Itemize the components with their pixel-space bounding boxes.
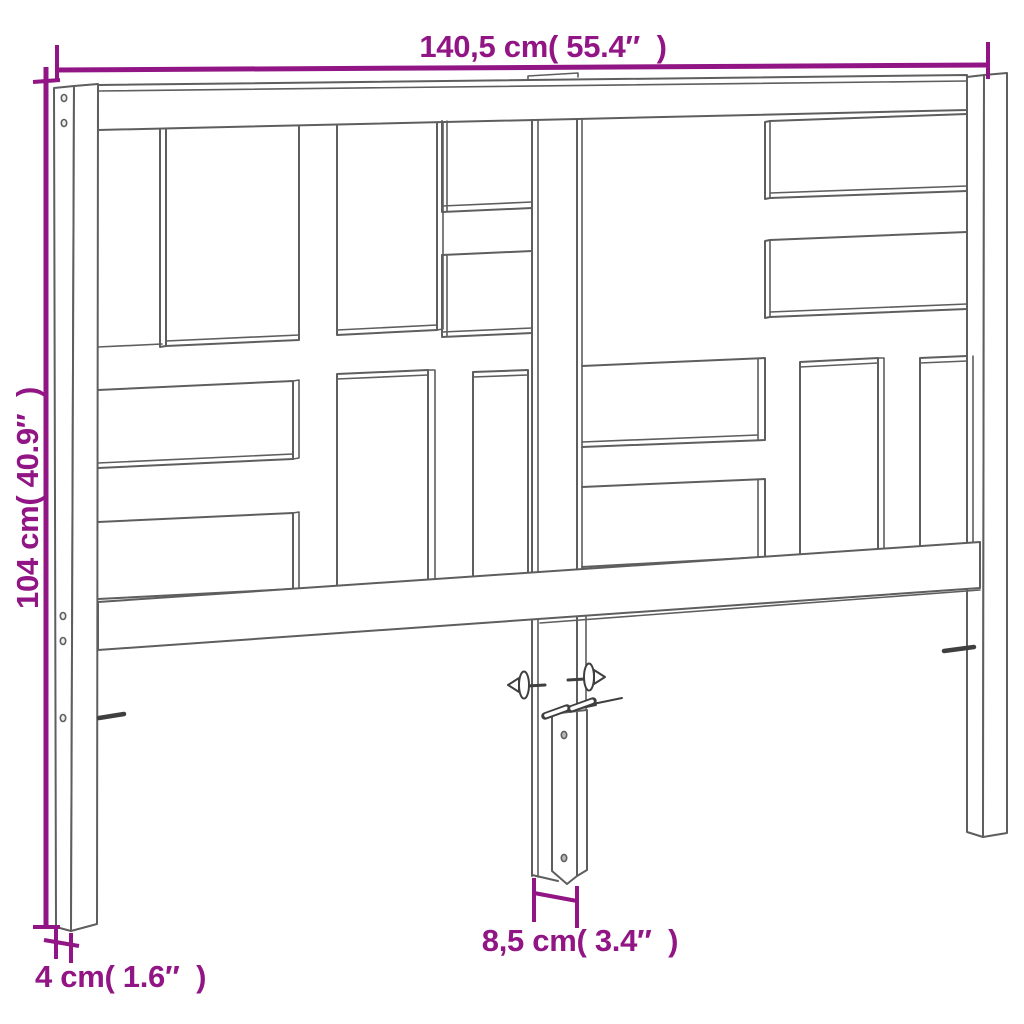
bracket-hole [561,854,566,861]
headboard-dimension-diagram: 140,5 cm( 55.4″ ) 104 cm( 40.9″ ) 4 cm( … [0,0,1024,1024]
screw-hole [61,120,66,127]
lattice-left-half [98,121,532,599]
screw-hole [61,95,66,102]
bracket-width-dimension: 8,5 cm( 3.4″ ) [482,878,678,958]
left-post [54,84,124,931]
width-dimension-label: 140,5 cm( 55.4″ ) [419,29,666,64]
screw-hole [60,638,65,645]
screw-icon [571,698,622,709]
screw-hole [60,613,65,620]
headboard-drawing [54,73,1007,931]
lattice-right-half [582,114,973,567]
bottom-rail [98,542,980,650]
screw-hole [60,715,65,722]
width-dimension: 140,5 cm( 55.4″ ) [56,29,988,82]
center-stile [532,119,582,572]
diagram-canvas: 140,5 cm( 55.4″ ) 104 cm( 40.9″ ) 4 cm( … [0,0,1024,1024]
right-post [944,73,1007,837]
dimension-annotations: 140,5 cm( 55.4″ ) 104 cm( 40.9″ ) 4 cm( … [10,29,988,994]
post-width-dimension: 4 cm( 1.6″ ) [35,929,206,994]
bolt-icon [99,714,124,718]
wing-bolt-icon [568,664,605,691]
mounting-bracket [552,710,587,884]
center-hardware [508,664,622,717]
wing-bolt-icon [508,672,545,699]
height-dimension: 104 cm( 40.9″ ) [10,67,60,928]
post-width-dimension-label: 4 cm( 1.6″ ) [35,959,206,994]
bracket-hole [561,731,566,738]
bracket-width-dimension-label: 8,5 cm( 3.4″ ) [482,923,678,958]
height-dimension-label: 104 cm( 40.9″ ) [10,387,45,609]
